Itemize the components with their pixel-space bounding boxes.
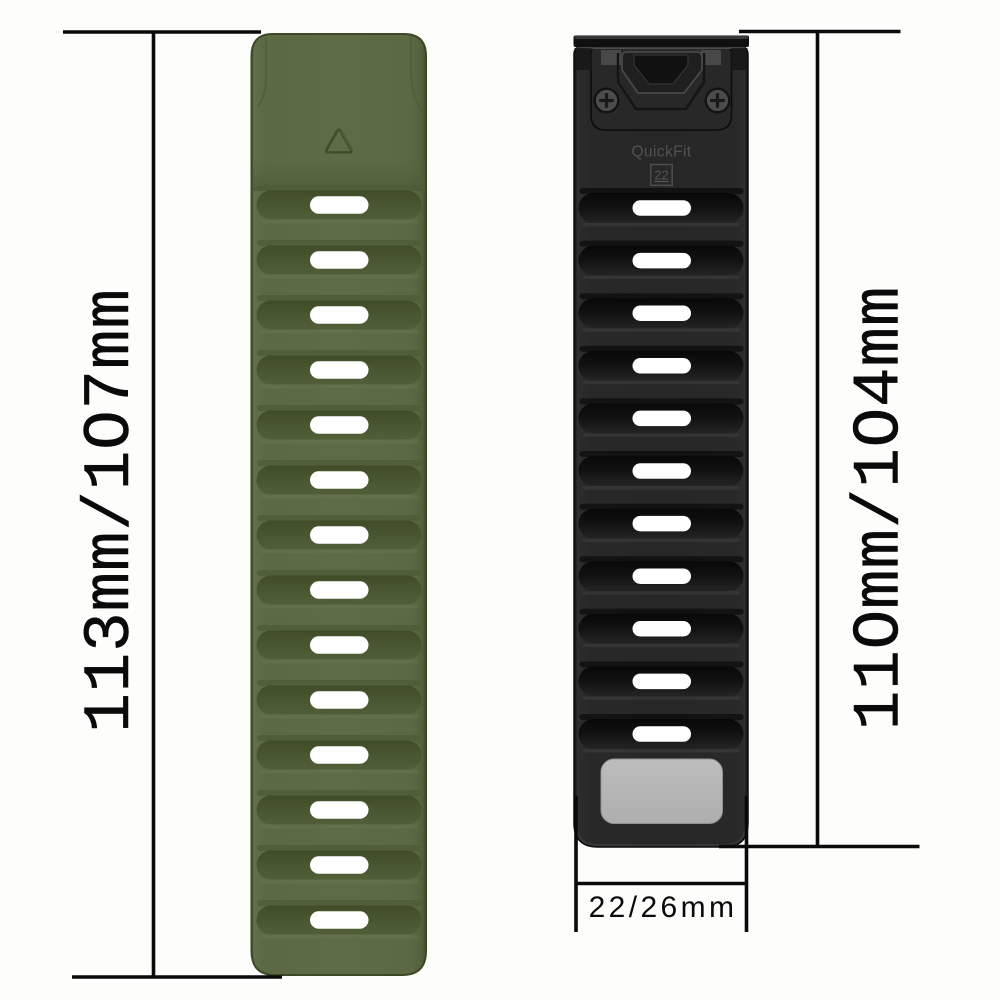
svg-text:113mm/1O7mm: 113mm/1O7mm [73, 288, 148, 732]
svg-text:22: 22 [654, 168, 668, 183]
svg-text:11Omm/1O4mm: 11Omm/1O4mm [843, 286, 918, 730]
svg-text:QuickFit: QuickFit [631, 144, 691, 161]
svg-text:22/26mm: 22/26mm [589, 891, 738, 924]
